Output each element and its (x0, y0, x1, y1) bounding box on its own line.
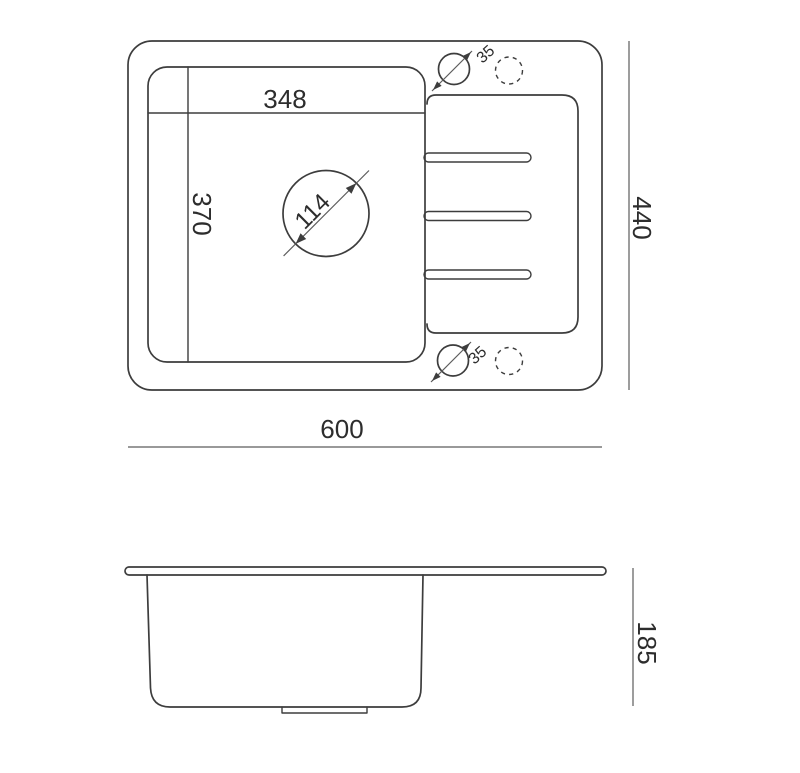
sink-technical-drawing: 114 35 35 348 370 600 (0, 0, 800, 773)
side-bowl-outline (147, 575, 423, 707)
drainboard-rib (424, 212, 531, 221)
tap-hole-top-alt-circle (496, 57, 523, 84)
top-view: 114 35 35 348 370 600 (128, 41, 657, 447)
bowl-width-label: 348 (263, 84, 306, 114)
side-rim-outline (125, 567, 606, 575)
overall-depth-label: 440 (627, 196, 657, 239)
drainboard-outline (427, 95, 578, 333)
tap-hole-top-label: 35 (474, 42, 499, 67)
drainboard-rib (424, 153, 531, 162)
bowl-depth-label: 370 (187, 192, 217, 235)
sink-technical-drawing-page: 114 35 35 348 370 600 (0, 0, 800, 773)
side-view: 185 (125, 567, 662, 713)
drainboard-rib (424, 270, 531, 279)
side-drain-stub (282, 707, 367, 713)
drain-diameter-label: 114 (290, 189, 336, 235)
tap-hole-bottom-alt-circle (496, 348, 523, 375)
side-height-label: 185 (632, 621, 662, 664)
overall-width-label: 600 (320, 414, 363, 444)
tap-hole-bottom-label: 35 (466, 343, 491, 368)
